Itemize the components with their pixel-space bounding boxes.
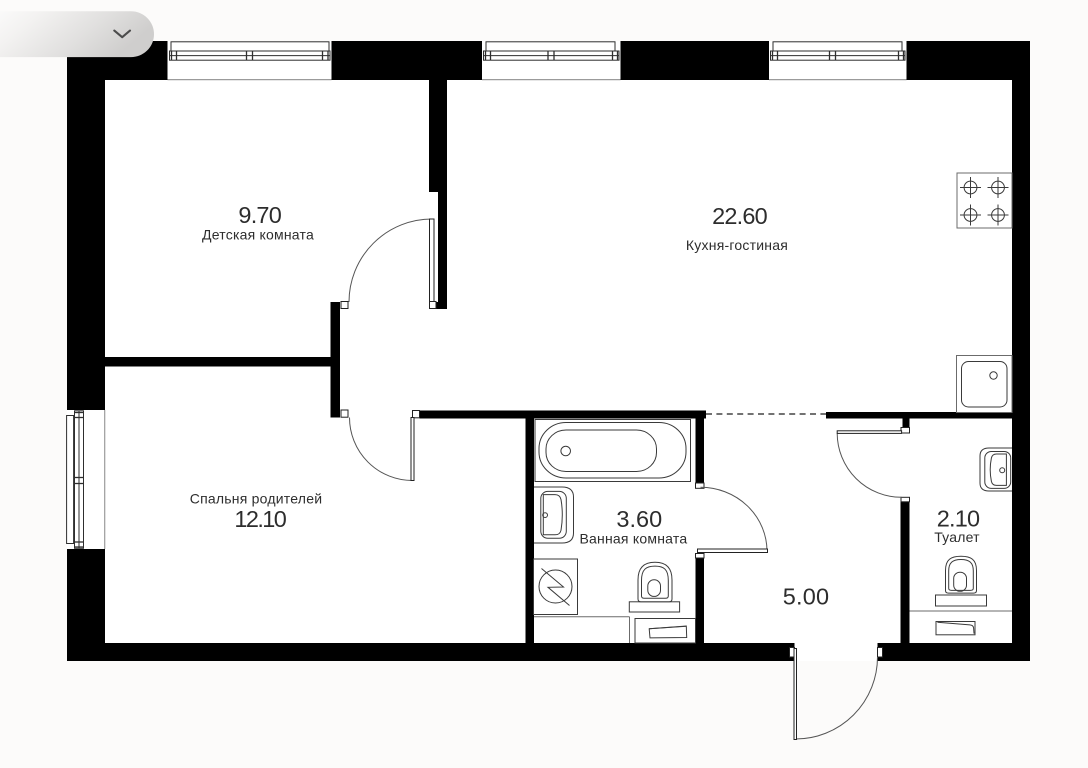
svg-text:Детская комната: Детская комната	[202, 227, 314, 243]
svg-text:12.10: 12.10	[234, 506, 286, 532]
svg-text:Ванная комната: Ванная комната	[579, 531, 687, 547]
svg-text:3.60: 3.60	[616, 506, 662, 532]
svg-text:22.60: 22.60	[712, 203, 768, 229]
svg-text:2.10: 2.10	[937, 506, 980, 532]
svg-text:9.70: 9.70	[238, 202, 281, 228]
svg-text:5.00: 5.00	[783, 583, 830, 609]
svg-text:Кухня-гостиная: Кухня-гостиная	[686, 237, 788, 253]
svg-text:Туалет: Туалет	[934, 529, 980, 545]
svg-text:Спальня родителей: Спальня родителей	[190, 491, 323, 507]
